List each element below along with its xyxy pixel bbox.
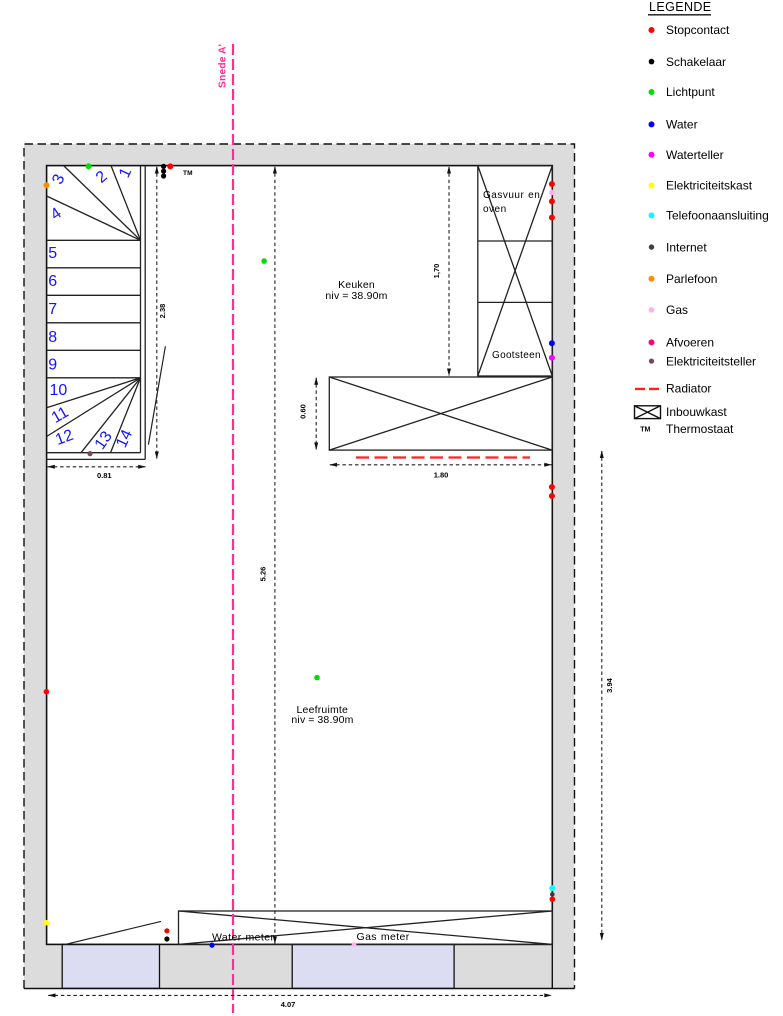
svg-text:0.60: 0.60 [299,404,308,419]
svg-text:Parlefoon: Parlefoon [666,272,717,286]
svg-text:niv = 38.90m: niv = 38.90m [325,290,387,302]
svg-text:LEGENDE: LEGENDE [649,0,712,14]
svg-text:Stopcontact: Stopcontact [666,23,730,37]
svg-text:3.94: 3.94 [605,677,614,692]
svg-text:Waterteller: Waterteller [666,148,724,162]
svg-text:Thermostaat: Thermostaat [666,422,734,436]
svg-text:2.38: 2.38 [158,304,167,319]
svg-text:Elektriciteitskast: Elektriciteitskast [666,179,753,193]
svg-text:4.07: 4.07 [281,1000,296,1009]
svg-text:Internet: Internet [666,240,707,254]
svg-text:Lichtpunt: Lichtpunt [666,85,715,99]
svg-text:8: 8 [48,329,57,346]
svg-text:Schakelaar: Schakelaar [666,55,726,69]
svg-text:Telefoonaansluiting: Telefoonaansluiting [666,209,769,223]
svg-text:Gas meter: Gas meter [357,931,410,943]
svg-text:TM: TM [183,170,193,177]
svg-text:Snede A': Snede A' [217,44,229,88]
svg-text:Gootsteen: Gootsteen [492,350,541,361]
svg-text:10: 10 [50,382,68,399]
svg-text:Radiator: Radiator [666,382,711,396]
svg-text:Afvoeren: Afvoeren [666,336,714,350]
svg-text:5.26: 5.26 [258,567,267,582]
svg-text:Elektriciteitsteller: Elektriciteitsteller [666,354,756,368]
svg-text:9: 9 [48,357,57,374]
svg-text:Gasvuur en: Gasvuur en [483,190,540,201]
svg-text:1,70: 1,70 [432,264,441,279]
svg-text:0.81: 0.81 [97,471,112,480]
svg-text:niv = 38.90m: niv = 38.90m [291,714,353,726]
svg-text:5: 5 [48,245,57,262]
svg-text:Inbouwkast: Inbouwkast [666,405,727,419]
svg-text:TM: TM [640,427,650,434]
svg-text:Gas: Gas [666,303,688,317]
svg-text:1.80: 1.80 [434,471,449,480]
svg-text:7: 7 [48,301,57,318]
svg-text:Water: Water [666,118,698,132]
svg-text:oven: oven [483,204,507,215]
svg-text:Water meter: Water meter [212,932,274,944]
svg-text:6: 6 [48,273,57,290]
